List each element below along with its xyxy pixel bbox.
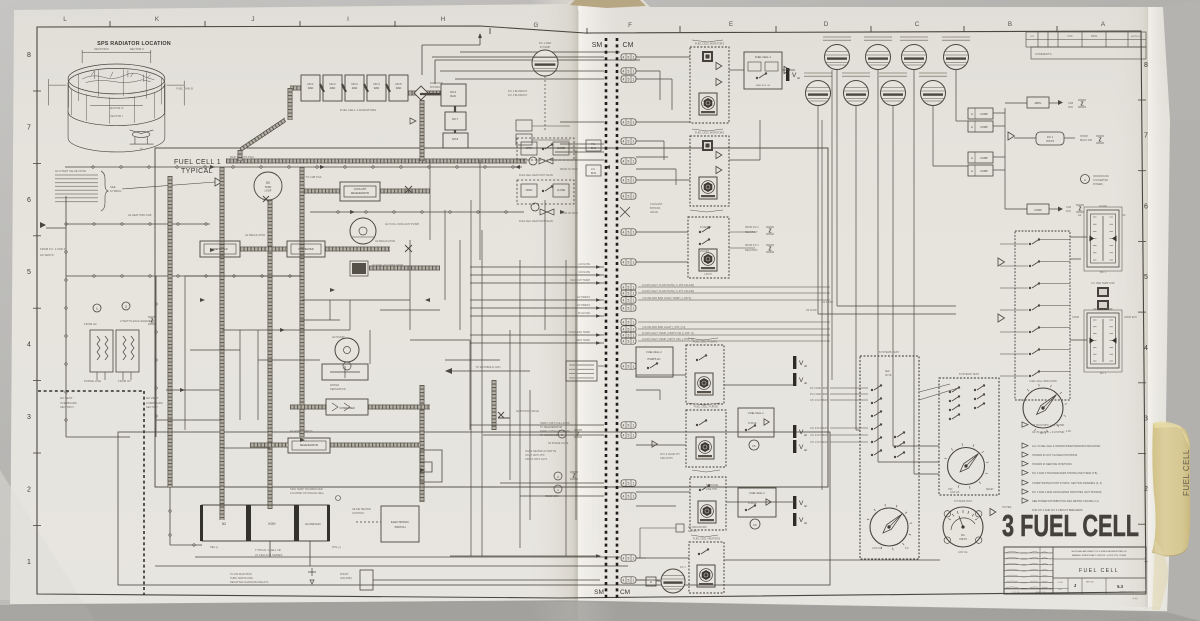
svg-text:SKIN TEMP: SKIN TEMP [576, 338, 590, 342]
svg-text:1: 1 [633, 231, 635, 235]
svg-text:VOLTS: VOLTS [1046, 140, 1054, 143]
svg-text:OVERBOARD: OVERBOARD [60, 401, 77, 405]
svg-text:RAD: RAD [330, 86, 336, 90]
svg-text:5: 5 [628, 179, 630, 183]
svg-text:RESET: RESET [986, 489, 994, 491]
svg-text:F/C 3 N2 PRESS: F/C 3 N2 PRESS [810, 428, 828, 430]
svg-text:( FLOW AND BAR LIGHT, TEMP ): ( FLOW AND BAR LIGHT, TEMP ) [ 100°F] [642, 296, 692, 300]
svg-text:COMP: COMP [980, 112, 988, 116]
svg-text:2 WATTS EACH ELEMENT: 2 WATTS EACH ELEMENT [120, 319, 155, 323]
svg-text:OFF AT 190°F ±10°F: OFF AT 190°F ±10°F [525, 458, 548, 461]
svg-text:WATER: WATER [330, 383, 339, 387]
svg-text:INLINE HEATER: INLINE HEATER [352, 508, 371, 511]
svg-text:H2 HEAT WFD CAB: H2 HEAT WFD CAB [128, 213, 152, 217]
svg-text:4: 4 [623, 299, 625, 303]
svg-text:THRU SM/CM AND: THRU SM/CM AND [230, 576, 253, 580]
svg-text:5: 5 [628, 495, 630, 499]
svg-text:1: 1 [633, 286, 635, 290]
svg-text:TO REGENERATOR: TO REGENERATOR [540, 426, 562, 429]
svg-text:BYPASS: BYPASS [430, 86, 440, 89]
svg-text:SYSTEMS TEST: SYSTEMS TEST [879, 350, 900, 354]
svg-text:SECTOR III: SECTOR III [94, 47, 109, 51]
svg-text:STANDS IN OUT CLOSED POSITIONS: STANDS IN OUT CLOSED POSITIONS [1032, 453, 1077, 457]
svg-text:IN TEMP: IN TEMP [540, 45, 551, 49]
svg-text:APPROVAL: APPROVAL [1131, 35, 1143, 38]
svg-text:H2 REGULATOR: H2 REGULATOR [245, 233, 265, 237]
svg-text:H2 START VALVE NOTE: H2 START VALVE NOTE [55, 169, 86, 173]
svg-text:5: 5 [628, 434, 630, 438]
svg-text:4: 4 [623, 231, 625, 235]
svg-text:NEGATIVE CHARGING RELAYS: NEGATIVE CHARGING RELAYS [230, 580, 269, 584]
svg-text:FUEL CELL INDICATOR: FUEL CELL INDICATOR [1029, 380, 1057, 383]
svg-text:CLOSE: CLOSE [557, 189, 566, 192]
svg-text:C: C [915, 21, 920, 28]
svg-text:H2 FLOW: H2 FLOW [578, 262, 590, 266]
svg-text:4: 4 [623, 328, 625, 332]
svg-text:Z: Z [572, 474, 575, 480]
svg-text:8: 8 [1144, 62, 1148, 69]
svg-text:Z: Z [768, 229, 771, 235]
svg-text:4: 4 [623, 495, 625, 499]
svg-text:6: 6 [1144, 203, 1148, 210]
svg-text:KOH: KOH [269, 522, 277, 526]
svg-text:5: 5 [628, 307, 630, 311]
svg-text:2: 2 [1144, 486, 1148, 493]
svg-text:LOW LVL: LOW LVL [958, 552, 969, 554]
svg-text:1: 1 [633, 557, 635, 561]
svg-text:5: 5 [628, 286, 630, 290]
svg-text:COOLANT: COOLANT [354, 187, 367, 191]
svg-text:FUEL CELL 1: FUEL CELL 1 [748, 412, 764, 415]
svg-text:1: 1 [633, 424, 635, 428]
svg-text:FUEL CELL REACTANT VALVE: FUEL CELL REACTANT VALVE [519, 174, 553, 177]
svg-text:F2 REACT: F2 REACT [700, 226, 712, 229]
svg-text:5: 5 [628, 261, 630, 265]
svg-text:FS: FS [752, 444, 756, 448]
svg-text:4: 4 [623, 292, 625, 296]
svg-text:COND EXH TEMP: COND EXH TEMP [568, 330, 590, 334]
svg-text:A: A [971, 112, 973, 116]
svg-text:1: 1 [633, 261, 635, 265]
svg-text:COOLANT: COOLANT [650, 202, 663, 206]
svg-text:LOOP: LOOP [265, 190, 272, 193]
svg-text:RAD: RAD [308, 86, 314, 90]
svg-text:PURGE LINE: PURGE LINE [84, 379, 101, 383]
svg-text:COMMENTS:: COMMENTS: [1035, 52, 1052, 56]
svg-text:F/C 1: F/C 1 [1047, 136, 1054, 139]
svg-text:dc: dc [804, 433, 808, 437]
svg-text:4: 4 [623, 70, 625, 74]
svg-text:TYPICAL 1 CELL OF: TYPICAL 1 CELL OF [255, 548, 282, 552]
svg-text:5: 5 [628, 328, 630, 332]
svg-text:4: 4 [623, 160, 625, 164]
svg-text:F/C 2 BLOWOUT: F/C 2 BLOWOUT [508, 94, 528, 97]
svg-text:5: 5 [628, 424, 630, 428]
svg-text:REGENERATOR: REGENERATOR [300, 444, 319, 447]
svg-text:SECTOR IV: SECTOR IV [109, 106, 123, 110]
svg-text:E: E [729, 21, 733, 28]
svg-text:F/C 2 AND 3 TRANSDUCERS SHOWN: F/C 2 AND 3 TRANSDUCERS SHOWN AND ITEMS … [1032, 471, 1097, 475]
svg-text:LINE HTR: LINE HTR [706, 488, 717, 491]
svg-text:2: 2 [27, 486, 31, 493]
svg-text:SYMBOL: SYMBOL [110, 189, 122, 193]
svg-text:FLOW: FLOW [1099, 204, 1107, 208]
svg-text:PREHEATER: PREHEATER [298, 248, 313, 251]
svg-text:H2 FLOW: H2 FLOW [806, 309, 817, 312]
svg-text:5.3: 5.3 [1117, 584, 1123, 589]
svg-text:2: 2 [125, 305, 127, 309]
svg-text:5: 5 [628, 121, 630, 125]
svg-text:1: 1 [633, 579, 635, 583]
svg-text:FLOW LIGHT, FLOW RATE [ C.270: FLOW LIGHT, FLOW RATE [ C.270 CAL/HR] [642, 289, 694, 293]
svg-text:FLOW LIGHT, TEMP [ 1500°F OR: FLOW LIGHT, TEMP [ 1500°F OR ] [ 150° H] [642, 331, 694, 335]
svg-text:RAD OUT TEMP: RAD OUT TEMP [570, 278, 590, 282]
svg-text:FUEL CELL PURGE: FUEL CELL PURGE [694, 405, 719, 409]
svg-text:COMP: COMP [980, 125, 988, 129]
svg-text:O2 70 N2 60°F + 0-3.5 PSID: O2 70 N2 60°F + 0-3.5 PSID [1032, 430, 1065, 434]
svg-text:A: A [971, 125, 973, 129]
svg-text:Z: Z [576, 432, 579, 438]
svg-text:LATCH: LATCH [704, 273, 712, 276]
svg-text:H2 BYPASS VALVE: H2 BYPASS VALVE [516, 409, 539, 413]
svg-text:O2 REGULATOR: O2 REGULATOR [375, 239, 395, 243]
svg-text:FROM F.C. 2 AND 3: FROM F.C. 2 AND 3 [40, 247, 66, 251]
svg-text:COND EXH: COND EXH [1124, 316, 1137, 319]
svg-text:CAB: CAB [1066, 206, 1071, 209]
svg-text:NO. 1: NO. 1 [1100, 372, 1107, 375]
svg-text:SEPARATOR: SEPARATOR [330, 387, 346, 391]
svg-text:RECEIVERS: RECEIVERS [545, 495, 559, 498]
svg-text:RAD: RAD [374, 86, 380, 90]
svg-text:REACTANT: REACTANT [745, 231, 758, 234]
svg-text:7: 7 [27, 124, 31, 131]
svg-text:COMP: COMP [1034, 209, 1042, 212]
svg-text:Z: Z [1078, 207, 1081, 213]
svg-text:REACTANT: REACTANT [745, 249, 758, 252]
svg-text:RAD: RAD [396, 86, 402, 90]
svg-text:( FLOW AND BAR LIGHT ) [ PR ]: ( FLOW AND BAR LIGHT ) [ PR ] [ N] [642, 325, 685, 329]
svg-text:FROM F/C 3: FROM F/C 3 [745, 244, 759, 247]
svg-text:SHUNT: SHUNT [340, 573, 349, 576]
svg-text:CHG: CHG [1067, 35, 1072, 38]
svg-text:dc: dc [804, 364, 808, 368]
svg-text:4: 4 [623, 424, 625, 428]
svg-text:FROM F/C 2: FROM F/C 2 [745, 226, 759, 229]
svg-text:1: 1 [633, 434, 635, 438]
svg-text:STANDS IN SERVICE POSITIONS: STANDS IN SERVICE POSITIONS [1032, 462, 1072, 466]
svg-text:1: 1 [633, 140, 635, 144]
svg-text:5: 5 [628, 482, 630, 486]
svg-text:1: 1 [633, 340, 635, 344]
svg-text:POS (+): POS (+) [332, 546, 341, 549]
svg-text:1: 1 [633, 121, 635, 125]
svg-text:FUEL CELL 1: FUEL CELL 1 [174, 159, 221, 166]
svg-text:FLOW LIGHT, FLOW RATE [ C.153: FLOW LIGHT, FLOW RATE [ C.153 CAL/HR] [642, 283, 694, 287]
svg-text:1: 1 [633, 482, 635, 486]
svg-text:1: 1 [633, 56, 635, 60]
svg-text:(100 AMP): (100 AMP) [340, 577, 352, 580]
svg-text:4: 4 [623, 307, 625, 311]
svg-text:OVERBOARD: OVERBOARD [146, 401, 163, 405]
svg-text:POWER): POWER) [1093, 183, 1103, 186]
svg-text:MAIN BUS ON: MAIN BUS ON [756, 84, 771, 87]
svg-text:F.C. BAD TEMP LOW: F.C. BAD TEMP LOW [1091, 282, 1115, 285]
svg-text:FROM O2 TANK: FROM O2 TANK [560, 168, 578, 171]
svg-text:FUEL CELL 2: FUEL CELL 2 [755, 55, 771, 59]
svg-text:3: 3 [27, 414, 31, 421]
svg-text:1: 1 [633, 195, 635, 199]
svg-text:1: 1 [633, 179, 635, 183]
svg-text:1: 1 [633, 307, 635, 311]
svg-text:Z: Z [150, 319, 153, 325]
svg-text:4: 4 [1144, 345, 1148, 352]
svg-text:Z: Z [1098, 138, 1101, 144]
svg-text:TANK: TANK [265, 185, 272, 189]
svg-text:H2: H2 [1078, 213, 1082, 217]
svg-text:FUEL CELL REACTANT VALVE: FUEL CELL REACTANT VALVE [519, 220, 553, 223]
svg-text:DATE: DATE [1091, 35, 1098, 38]
svg-text:4: 4 [623, 557, 625, 561]
svg-text:5: 5 [628, 195, 630, 199]
svg-text:F.C.: F.C. [591, 143, 596, 146]
svg-text:H2 PRESS: H2 PRESS [577, 295, 590, 299]
svg-text:SM: SM [592, 42, 603, 49]
svg-text:H2 VENT: H2 VENT [146, 396, 159, 400]
svg-text:FUEL CELL MONITORS: FUEL CELL MONITORS [695, 42, 725, 46]
svg-text:4: 4 [623, 56, 625, 60]
svg-text:1: 1 [633, 160, 635, 164]
svg-text:O2 FLOW: O2 FLOW [578, 270, 590, 274]
svg-text:SWITCH: SWITCH [394, 525, 405, 529]
svg-text:5: 5 [628, 579, 630, 583]
svg-text:SEL ON: SEL ON [688, 530, 697, 533]
svg-text:5: 5 [1144, 274, 1148, 281]
svg-text:BUS: BUS [591, 147, 596, 150]
svg-text:VALVE HEATER (10 WATTS): VALVE HEATER (10 WATTS) [525, 450, 556, 453]
svg-text:dc: dc [804, 448, 808, 452]
svg-text:J: J [251, 16, 254, 23]
svg-text:OFF: OFF [948, 489, 953, 491]
svg-text:F/C 1 AND 2 AND ASSOCIATED SWI: F/C 1 AND 2 AND ASSOCIATED SWITCHES (NOT… [1032, 490, 1102, 494]
svg-text:6: 6 [27, 197, 31, 204]
svg-text:FS: FS [753, 523, 757, 527]
svg-text:H2 VENTS: H2 VENTS [40, 253, 54, 257]
svg-text:SECTOR I: SECTOR I [146, 405, 158, 409]
svg-text:5: 5 [27, 269, 31, 276]
svg-text:5: 5 [628, 231, 630, 235]
svg-text:5: 5 [628, 292, 630, 296]
svg-text:CONDITIONING POINT IN MISC. SE: CONDITIONING POINT IN MISC. SECTION DRAW… [1032, 481, 1102, 485]
svg-text:FUEL CELL PUMPS: FUEL CELL PUMPS [693, 340, 718, 344]
svg-text:MRS NO: MRS NO [1086, 582, 1094, 584]
svg-text:4: 4 [623, 321, 625, 325]
svg-text:AMPL: AMPL [1034, 101, 1042, 105]
svg-text:SKIN TEMP TRANSDUCER: SKIN TEMP TRANSDUCER [290, 487, 323, 491]
svg-text:4: 4 [623, 195, 625, 199]
svg-text:5: 5 [628, 365, 630, 369]
svg-text:FUEL CELL 2: FUEL CELL 2 [646, 351, 662, 354]
svg-text:ELECTRONIC: ELECTRONIC [391, 520, 409, 524]
svg-text:4-60: 4-60 [1066, 430, 1071, 433]
svg-text:4: 4 [623, 579, 625, 583]
svg-text:CIRCUITRY: CIRCUITRY [660, 457, 673, 460]
svg-text:CLOSE: CLOSE [557, 147, 566, 150]
svg-text:CONTROL: CONTROL [352, 512, 365, 515]
svg-text:NO.8: NO.8 [452, 137, 459, 141]
svg-text:REGENERATOR: REGENERATOR [351, 192, 370, 195]
svg-text:FLOW LIGHT, TEMP [ 360°F OR ]: FLOW LIGHT, TEMP [ 360°F OR ] [ 4750° H] [642, 337, 694, 341]
svg-text:5: 5 [628, 56, 630, 60]
svg-text:4: 4 [623, 261, 625, 265]
svg-text:D: D [824, 21, 829, 28]
svg-text:SM: SM [594, 589, 604, 596]
svg-text:30 K-3 VALVE TPI: 30 K-3 VALVE TPI [660, 453, 680, 456]
svg-text:F/C 2 RAD TEMP: F/C 2 RAD TEMP [810, 393, 829, 396]
svg-text:TYPICAL: TYPICAL [181, 168, 213, 175]
svg-text:F/C 1 N2 PRESS: F/C 1 N2 PRESS [810, 400, 828, 402]
svg-text:1: 1 [633, 328, 635, 332]
svg-text:B: B [1008, 21, 1012, 28]
svg-text:LOW LVL: LOW LVL [950, 492, 961, 494]
svg-text:F/C 1 BLOWOUT: F/C 1 BLOWOUT [508, 90, 528, 93]
svg-text:dc: dc [804, 521, 808, 525]
svg-text:RAD: RAD [352, 86, 358, 90]
svg-text:RAD: RAD [450, 94, 456, 98]
svg-text:O2 PURGE VALVE: O2 PURGE VALVE [548, 442, 569, 445]
svg-text:ON AT 160°F ±5°F: ON AT 160°F ±5°F [525, 454, 545, 457]
svg-text:NO.6: NO.6 [450, 90, 457, 94]
svg-text:4: 4 [623, 78, 625, 82]
svg-text:BUS: BUS [591, 172, 596, 175]
svg-text:SHEET 1 OF 1: SHEET 1 OF 1 [1119, 592, 1133, 594]
svg-text:1: 1 [633, 70, 635, 74]
svg-text:1: 1 [633, 78, 635, 82]
svg-text:NOTE: NOTE [885, 375, 892, 377]
svg-text:H2 PURGE: H2 PURGE [706, 484, 719, 487]
svg-text:A: A [971, 169, 973, 173]
svg-text:FUEL CELL HEATERS: FUEL CELL HEATERS [693, 537, 721, 541]
svg-text:F/C 1: F/C 1 [680, 566, 687, 569]
svg-text:NO.7: NO.7 [452, 117, 459, 121]
svg-text:COMP: COMP [980, 156, 988, 160]
svg-text:F: F [628, 22, 632, 29]
svg-text:BYPASS: BYPASS [650, 206, 660, 210]
svg-text:O2 PRESS: O2 PRESS [577, 303, 590, 307]
svg-text:N2: N2 [222, 522, 226, 526]
svg-text:CON: CON [1058, 582, 1063, 584]
svg-text:1: 1 [633, 321, 635, 325]
svg-text:NO.1: NO.1 [307, 82, 314, 86]
svg-text:MODULE TEMP: MODULE TEMP [1094, 307, 1113, 311]
svg-text:(FROM DC/DC: (FROM DC/DC [1093, 175, 1109, 178]
svg-text:FUEL CELL: FUEL CELL [1182, 449, 1191, 496]
svg-text:FUEL 5.3: FUEL 5.3 [1036, 592, 1046, 594]
svg-text:FUEL CELL 2: FUEL CELL 2 [749, 492, 765, 495]
svg-text:F.C.: F.C. [591, 168, 596, 171]
svg-text:4: 4 [623, 179, 625, 183]
svg-text:VALVE: VALVE [650, 210, 658, 214]
svg-text:NO.5: NO.5 [395, 82, 402, 86]
svg-text:dc: dc [797, 76, 801, 80]
svg-text:COND: COND [1072, 316, 1079, 319]
svg-text:A: A [1084, 178, 1086, 182]
svg-text:PH HI IND: PH HI IND [578, 311, 590, 315]
svg-text:CM: CM [620, 589, 630, 596]
svg-text:A: A [971, 156, 973, 160]
svg-text:DC INDICATORS: DC INDICATORS [688, 526, 707, 529]
svg-text:OPEN: OPEN [526, 189, 533, 192]
svg-text:dc: dc [804, 381, 808, 385]
svg-text:8: 8 [27, 52, 31, 59]
svg-text:1: 1 [27, 559, 31, 566]
svg-text:OPEN: OPEN [526, 147, 533, 150]
svg-text:4: 4 [623, 121, 625, 125]
svg-text:A: A [650, 580, 652, 584]
svg-text:dc: dc [804, 504, 808, 508]
svg-text:4: 4 [623, 482, 625, 486]
svg-text:FUEL CELL 1 RADIATORS: FUEL CELL 1 RADIATORS [340, 108, 376, 112]
svg-text:1: 1 [633, 334, 635, 338]
svg-text:BD/AC IND: BD/AC IND [1080, 139, 1092, 142]
svg-text:1: 1 [633, 365, 635, 369]
svg-text:5: 5 [628, 321, 630, 325]
svg-text:NATIONAL AERONAUTICS & SPAC: NATIONAL AERONAUTICS & SPACE ADMINISTRAT… [1072, 550, 1127, 553]
svg-text:FUEL CELL MONITORS: FUEL CELL MONITORS [695, 131, 725, 135]
svg-text:A-46: A-46 [1132, 598, 1138, 601]
svg-text:FROM O2: FROM O2 [118, 379, 131, 383]
svg-text:VALVES: VALVES [700, 250, 709, 253]
svg-text:TO CONDENSER: TO CONDENSER [540, 434, 559, 437]
svg-text:LTR: LTR [1030, 36, 1034, 38]
svg-text:LOW LVL: LOW LVL [872, 547, 883, 550]
svg-text:SECTOR IV: SECTOR IV [60, 405, 74, 409]
svg-text:FAN: FAN [1068, 106, 1073, 109]
svg-text:5: 5 [628, 78, 630, 82]
svg-text:GLYCOL COOLANT PUMP: GLYCOL COOLANT PUMP [385, 222, 419, 226]
svg-text:NO.2: NO.2 [329, 82, 336, 86]
svg-text:H2: H2 [266, 181, 270, 185]
svg-text:3 FUEL CELL: 3 FUEL CELL [1002, 508, 1139, 543]
svg-text:5: 5 [628, 340, 630, 344]
svg-text:SECTOR II: SECTOR II [130, 47, 144, 51]
svg-text:NO. 1: NO. 1 [1100, 271, 1107, 274]
svg-text:CONVERTER: CONVERTER [1093, 179, 1108, 182]
svg-text:H2 PUMP: H2 PUMP [332, 335, 345, 339]
svg-text:H: H [441, 16, 446, 23]
svg-text:14.3.24: 14.3.24 [1012, 592, 1020, 594]
svg-text:COMP: COMP [980, 169, 988, 173]
svg-text:Z: Z [1080, 102, 1083, 108]
svg-text:1: 1 [633, 495, 635, 499]
svg-text:5: 5 [628, 299, 630, 303]
svg-text:5: 5 [628, 557, 630, 561]
svg-text:NO.4: NO.4 [373, 82, 380, 86]
svg-text:F/C 1 RAD: F/C 1 RAD [539, 41, 552, 45]
svg-text:F/C 2 N2 PRESS: F/C 2 N2 PRESS [810, 435, 828, 437]
svg-text:SYSTEMS TEST: SYSTEMS TEST [959, 372, 980, 376]
svg-text:FUEL CELL: FUEL CELL [1079, 568, 1119, 574]
svg-text:4: 4 [623, 334, 625, 338]
svg-text:CM: CM [623, 42, 634, 49]
svg-text:1: 1 [633, 299, 635, 303]
svg-text:ALL 3 FUEL CELLS INTERCONNECTE: ALL 3 FUEL CELLS INTERCONNECTED/DATA IND… [1032, 444, 1100, 448]
svg-text:FROM H2: FROM H2 [84, 322, 97, 326]
svg-text:G: G [534, 22, 539, 29]
svg-text:H2 70 N2 60°F + 0-1.5 PSID: H2 70 N2 60°F + 0-1.5 PSID [1032, 423, 1064, 427]
svg-text:7: 7 [1144, 133, 1148, 140]
svg-text:5: 5 [628, 160, 630, 164]
svg-text:LOCATED ON SINGLE CELL: LOCATED ON SINGLE CELL [290, 491, 325, 495]
